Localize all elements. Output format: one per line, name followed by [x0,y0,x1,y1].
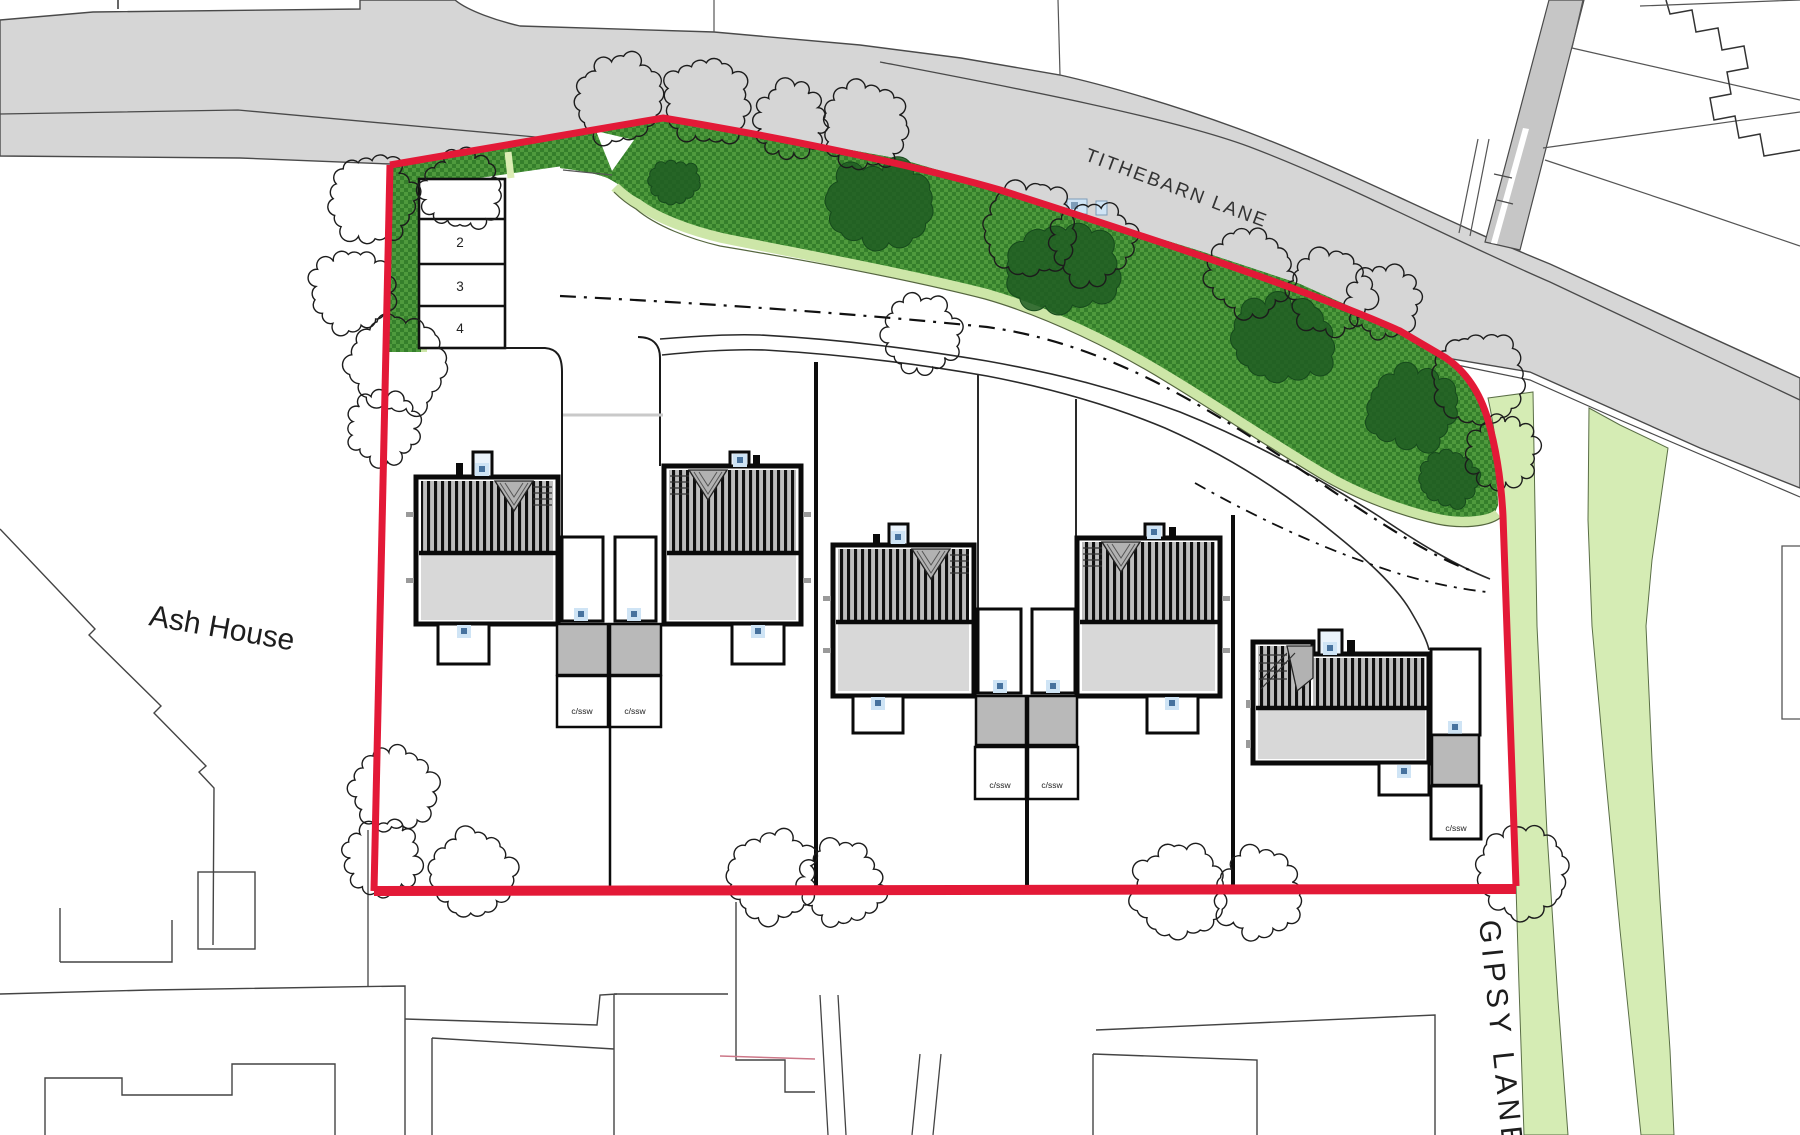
svg-text:c/ssw: c/ssw [624,706,646,716]
svg-text:c/ssw: c/ssw [1445,823,1467,833]
svg-text:2: 2 [456,235,464,250]
svg-text:c/ssw: c/ssw [571,706,593,716]
svg-text:c/ssw: c/ssw [989,780,1011,790]
svg-text:3: 3 [456,279,464,294]
svg-text:4: 4 [456,321,464,336]
svg-text:c/ssw: c/ssw [1041,780,1063,790]
